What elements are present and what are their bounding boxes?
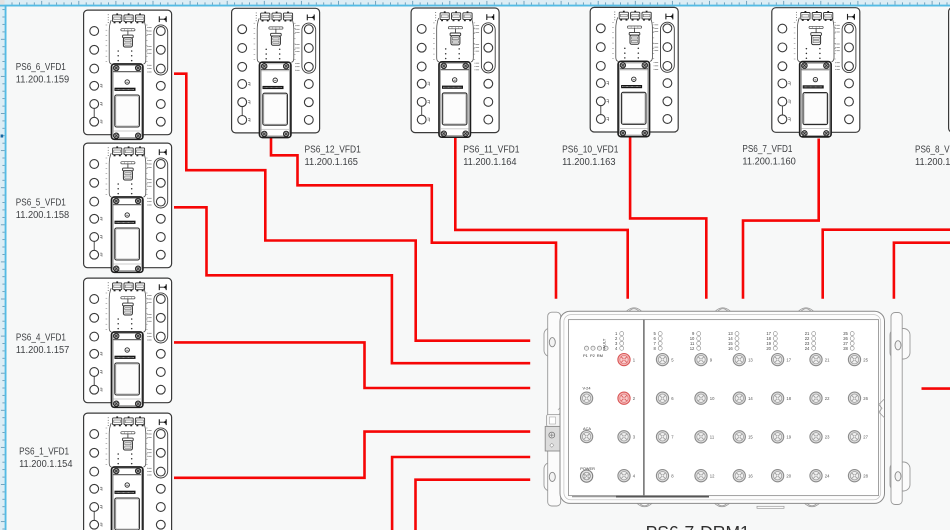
svg-text:11.200.1.159: 11.200.1.159: [16, 75, 69, 86]
svg-text:11.200.1.161: 11.200.1.161: [915, 157, 950, 168]
svg-text:10: 10: [710, 396, 715, 401]
svg-text:11.200.1.157: 11.200.1.157: [16, 345, 69, 356]
svg-text:RM: RM: [597, 353, 603, 358]
svg-text:FAULT: FAULT: [601, 338, 606, 351]
svg-text:13: 13: [748, 357, 753, 362]
svg-text:16: 16: [748, 473, 753, 478]
svg-text:15: 15: [748, 435, 753, 440]
svg-text:PS6_10_VFD1: PS6_10_VFD1: [562, 144, 618, 155]
svg-text:20: 20: [766, 346, 771, 351]
svg-text:28: 28: [863, 473, 868, 478]
svg-text:P2: P2: [590, 353, 596, 358]
svg-text:11.200.1.163: 11.200.1.163: [562, 157, 616, 168]
svg-text:P1: P1: [583, 353, 589, 358]
svg-text:21: 21: [825, 357, 830, 362]
svg-text:PS6_5_VFD1: PS6_5_VFD1: [16, 198, 66, 209]
svg-text:28: 28: [843, 346, 848, 351]
svg-text:11.200.1.158: 11.200.1.158: [16, 210, 70, 221]
svg-text:PS6_7_VFD1: PS6_7_VFD1: [742, 144, 792, 155]
svg-text:12: 12: [690, 346, 695, 351]
svg-text:26: 26: [863, 396, 868, 401]
svg-text:11.200.1.160: 11.200.1.160: [742, 157, 796, 168]
svg-text:22: 22: [825, 396, 830, 401]
svg-text:19: 19: [786, 435, 791, 440]
svg-text:11.200.1.164: 11.200.1.164: [463, 157, 517, 168]
svg-text:17: 17: [786, 357, 791, 362]
svg-text:24: 24: [825, 473, 830, 478]
svg-text:11.200.1.165: 11.200.1.165: [305, 157, 359, 168]
svg-text:25: 25: [863, 357, 868, 362]
svg-text:24: 24: [805, 346, 810, 351]
svg-text:11.200.1.154: 11.200.1.154: [19, 459, 73, 470]
svg-text:16: 16: [728, 346, 733, 351]
svg-text:11: 11: [710, 435, 715, 440]
svg-text:12: 12: [710, 473, 715, 478]
svg-text:V-24: V-24: [583, 385, 592, 390]
svg-text:18: 18: [786, 396, 791, 401]
svg-text:23: 23: [825, 435, 830, 440]
svg-text:PS6-7-DRM1: PS6-7-DRM1: [646, 522, 750, 530]
svg-text:20: 20: [786, 473, 791, 478]
svg-text:PS6_8_VFD1: PS6_8_VFD1: [915, 144, 950, 155]
svg-text:PS6_4_VFD1: PS6_4_VFD1: [16, 333, 66, 344]
svg-text:14: 14: [748, 396, 753, 401]
svg-text:PS6_12_VFD1: PS6_12_VFD1: [305, 144, 361, 155]
svg-text:27: 27: [863, 435, 868, 440]
svg-text:PS6_11_VFD1: PS6_11_VFD1: [463, 144, 519, 155]
svg-text:PS6_1_VFD1: PS6_1_VFD1: [19, 447, 69, 458]
svg-text:PS6_6_VFD1: PS6_6_VFD1: [16, 62, 66, 73]
